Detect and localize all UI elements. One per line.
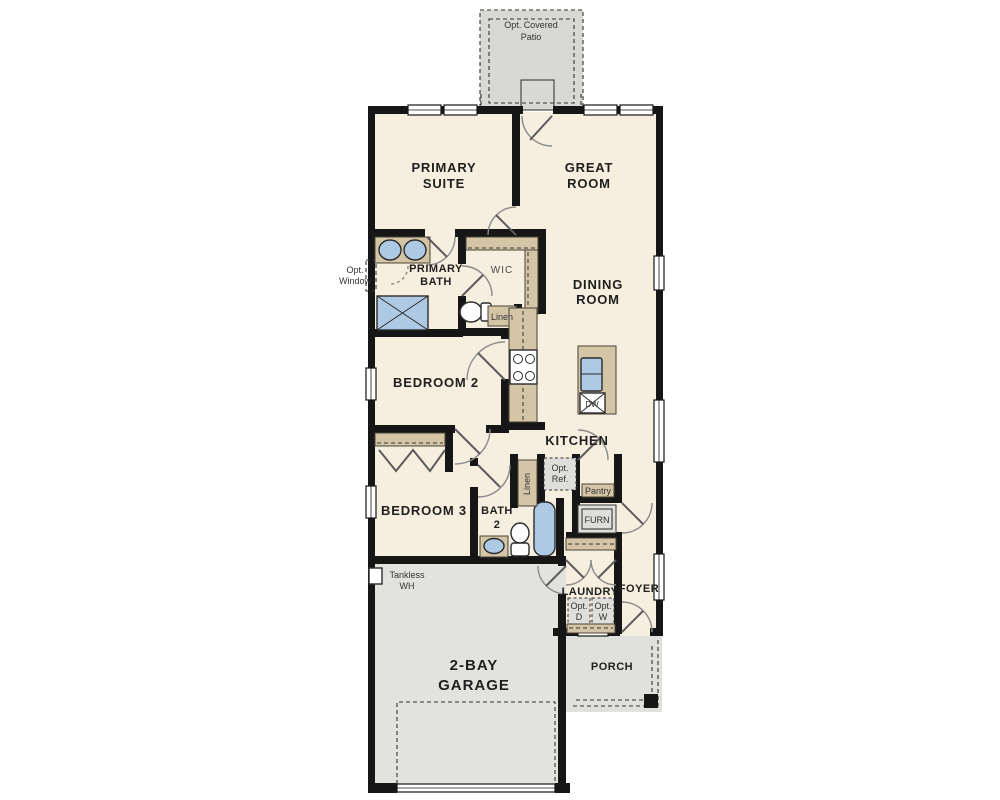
floor-plan-canvas: Opt. Covered Patio PRIMARY SUITE GREAT R… — [0, 0, 1000, 800]
bathtub — [534, 502, 555, 556]
patio-label: Opt. Covered — [504, 20, 558, 30]
pantry-label: Pantry — [585, 486, 612, 496]
linen2-label: Linen — [522, 473, 532, 495]
dining-room-label: DINING — [573, 277, 623, 292]
vanity-sink — [404, 240, 426, 260]
kitchen-label: KITCHEN — [545, 433, 608, 448]
wall-pantry-right — [614, 454, 622, 503]
wall-wic-right — [538, 229, 546, 314]
wall-linen2-left — [510, 454, 518, 508]
bath2-label: 2 — [494, 519, 501, 531]
wic-label: WIC — [491, 265, 513, 276]
primary-suite-label: SUITE — [423, 176, 465, 191]
bath2-sink — [484, 539, 504, 554]
tankless-wh-label: WH — [400, 581, 415, 591]
bedroom2-label: BEDROOM 2 — [393, 375, 479, 390]
garage-wall-top — [368, 556, 566, 564]
garage-label: GARAGE — [438, 677, 510, 694]
bedroom3-closet-shelf — [375, 433, 445, 446]
opt-washer-label: Opt. — [594, 601, 611, 611]
foyer-label: FOYER — [619, 583, 659, 595]
patio-label: Patio — [521, 32, 542, 42]
wall-closet3-right — [445, 425, 453, 472]
dining-room-label: ROOM — [576, 292, 620, 307]
primary-bath-label: BATH — [420, 276, 452, 288]
wall-tub-right — [556, 498, 564, 558]
wall-bedroom2-bottom — [368, 425, 455, 433]
dishwasher-label: DW — [585, 400, 599, 409]
toilet-tank — [511, 543, 529, 556]
bedroom3-label: BEDROOM 3 — [381, 503, 467, 518]
porch-post — [644, 694, 658, 708]
bath2-label: BATH — [481, 505, 513, 517]
wall-bedroom3-bath2 — [470, 487, 478, 558]
great-room-label: GREAT — [565, 160, 614, 175]
garage-label: 2-BAY — [450, 657, 499, 674]
wall-bath-wic — [458, 229, 466, 264]
tankless-water-heater — [369, 568, 382, 584]
wall-wic-top — [455, 229, 546, 237]
linen-label: Linen — [491, 312, 513, 322]
opt-dryer-label: Opt. — [570, 601, 587, 611]
wic-shelf-right — [525, 250, 538, 314]
great-room-label: ROOM — [567, 176, 611, 191]
wall-bath-top — [368, 229, 425, 237]
opt-window-label: Window — [339, 276, 372, 286]
exterior-wall-left — [368, 106, 375, 793]
floor-plan-page: Opt. Covered Patio PRIMARY SUITE GREAT R… — [0, 0, 1000, 800]
opt-window-label: Opt. — [346, 265, 363, 275]
opt-ref-label: Ref. — [552, 474, 569, 484]
tankless-wh-label: Tankless — [389, 570, 425, 580]
opt-ref-label: Opt. — [551, 463, 568, 473]
primary-suite-label: PRIMARY — [411, 160, 476, 175]
opt-dryer-label: D — [576, 612, 583, 622]
toilet-bowl — [511, 523, 529, 543]
wall-suite-greatroom — [512, 106, 520, 206]
porch-label: PORCH — [591, 661, 633, 673]
primary-bath-label: PRIMARY — [409, 263, 463, 275]
wall-bedroom2-right — [501, 329, 509, 339]
laundry-label: LAUNDRY — [562, 586, 619, 598]
furn-label: FURN — [585, 515, 610, 525]
opt-washer-label: W — [599, 612, 608, 622]
garage-floor — [372, 560, 566, 790]
vanity-sink — [379, 240, 401, 260]
toilet-bowl — [460, 302, 482, 322]
garage-wall-right — [558, 594, 566, 793]
garage-wall-bottom-left — [368, 783, 397, 793]
